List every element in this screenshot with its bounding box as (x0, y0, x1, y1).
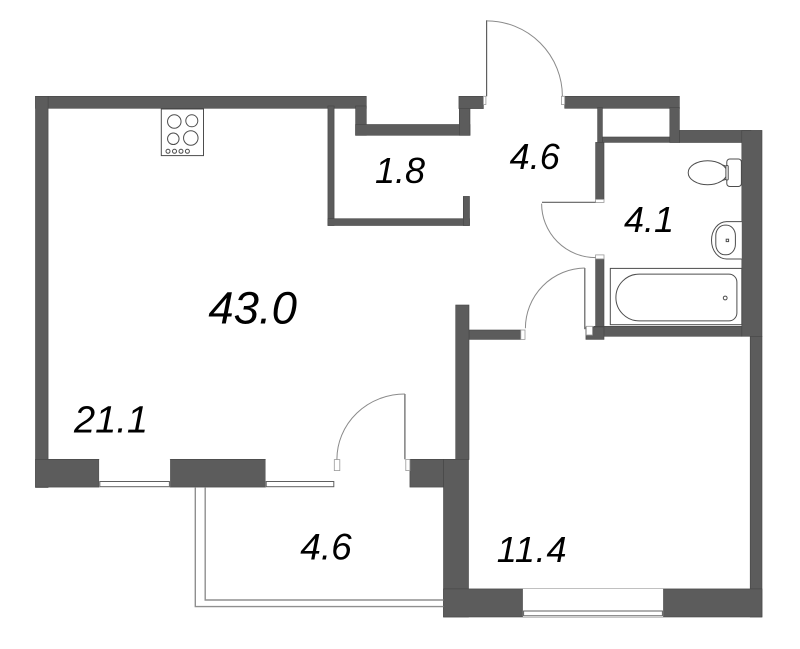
svg-text:21.1: 21.1 (73, 400, 148, 442)
svg-text:4.6: 4.6 (510, 136, 561, 177)
svg-text:1.8: 1.8 (375, 150, 425, 191)
svg-text:43.0: 43.0 (208, 283, 297, 334)
svg-text:11.4: 11.4 (497, 529, 568, 570)
svg-text:4.1: 4.1 (624, 199, 674, 240)
svg-text:4.6: 4.6 (300, 527, 352, 568)
